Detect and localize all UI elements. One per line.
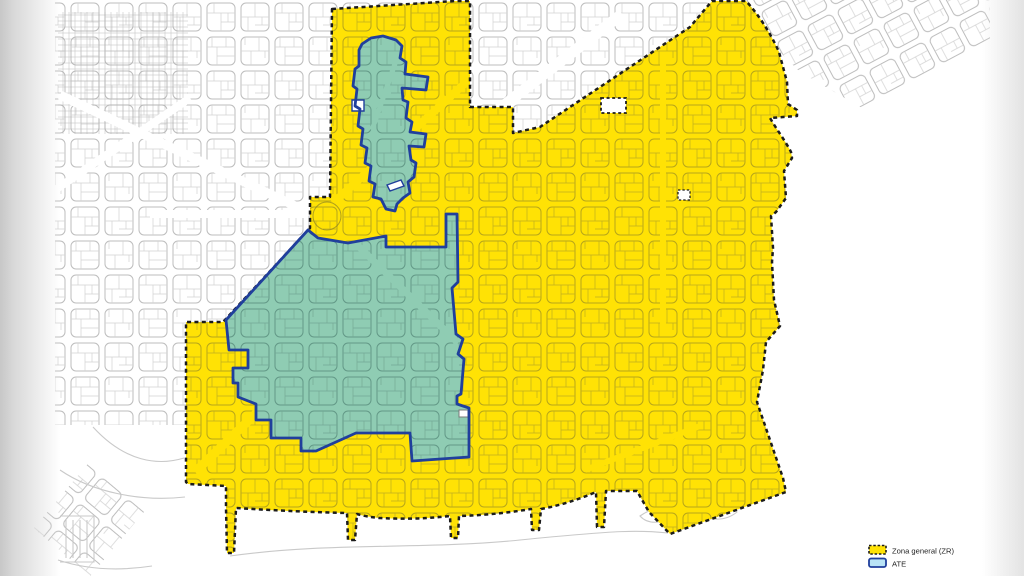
shoreline-curve: [230, 531, 668, 556]
water-curve: [93, 427, 184, 461]
zoning-map-canvas: Zona general (ZR) ATE: [0, 0, 1024, 576]
legend: Zona general (ZR) ATE: [869, 546, 955, 569]
legend-label-ate: ATE: [892, 560, 906, 569]
legend-swatch-zr: [869, 546, 886, 555]
zr-excluded-hole: [601, 98, 626, 113]
zoning-map-screenshot: Zona general (ZR) ATE: [0, 0, 1024, 576]
grid-bottomleft-rotated: [34, 464, 145, 576]
legend-label-zr: Zona general (ZR): [892, 547, 955, 556]
zr-excluded-hole-small: [678, 190, 690, 200]
legend-swatch-ate: [869, 559, 886, 568]
water-curve: [58, 560, 152, 569]
ate-lower-hole: [459, 410, 468, 417]
